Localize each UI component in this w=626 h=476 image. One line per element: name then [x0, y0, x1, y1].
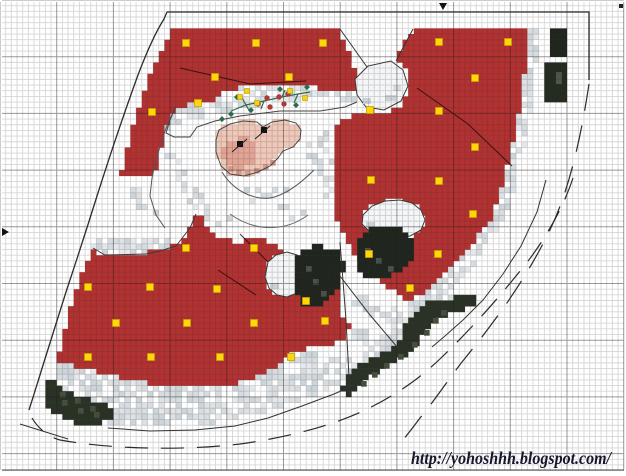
- svg-text:http://yohoshhh.blogspot.com/: http://yohoshhh.blogspot.com/: [411, 448, 613, 468]
